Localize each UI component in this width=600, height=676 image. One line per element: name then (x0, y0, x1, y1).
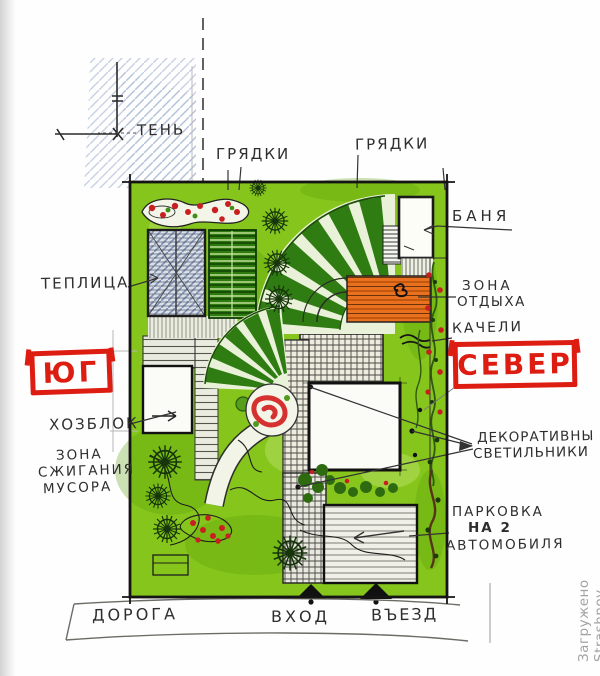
compass-north-label: СЕВЕР (457, 347, 573, 382)
house-shape (303, 377, 407, 476)
label-beds-right: ГРЯДКИ (355, 135, 429, 153)
label-entrance: ВХОД (271, 608, 330, 626)
terrace-grid-path (300, 334, 383, 383)
label-rest-zone-2: ОТДЫХА (457, 295, 526, 310)
compass-north-box: СЕВЕР (453, 340, 578, 389)
shed-shape (143, 366, 192, 433)
watermark-text: Загружено Strashnov для 7dach.ru (576, 579, 600, 662)
label-parking-2: НА 2 (468, 521, 512, 536)
label-parking-3: АВТОМОБИЛЯ (446, 537, 565, 554)
label-shed: ХОЗБЛОК (49, 415, 139, 433)
label-parking-1: ПАРКОВКА (452, 505, 544, 520)
label-beds-left: ГРЯДКИ (216, 146, 290, 163)
parking-area (324, 505, 417, 583)
label-swing: КАЧЕЛИ (452, 320, 523, 337)
label-burn-zone-1: ЗОНА (56, 447, 103, 463)
label-bathhouse: БАНЯ (452, 208, 510, 225)
vegetable-bed-striped (209, 230, 256, 318)
flower-bed-circle (246, 384, 298, 436)
label-burn-zone-2: СЖИГАНИЯ (38, 462, 136, 480)
compass-south-box: ЮГ (29, 349, 112, 396)
greenhouse-shape (148, 230, 205, 316)
label-drivein: ВЪЕЗД (371, 605, 438, 624)
label-rest-zone-1: ЗОНА (462, 279, 513, 294)
label-lights-2: СВЕТИЛЬНИКИ (473, 445, 589, 462)
scanned-plan-page: ТЕНЬ ГРЯДКИ ГРЯДКИ БАНЯ ЗОНА ОТДЫХА КАЧЕ… (0, 0, 600, 676)
site-plan-drawing (0, 0, 600, 676)
compass-south-label: ЮГ (42, 355, 100, 390)
label-shadow: ТЕНЬ (137, 122, 185, 139)
label-burn-zone-3: МУСОРА (43, 480, 113, 497)
label-road: ДОРОГА (92, 605, 178, 624)
shed-top-hatch (143, 336, 195, 368)
label-greenhouse: ТЕПЛИЦА (41, 274, 130, 292)
